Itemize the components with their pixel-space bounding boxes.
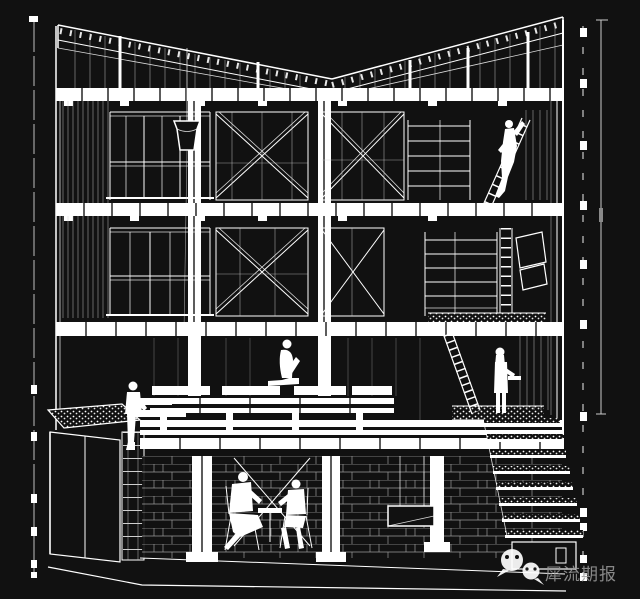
siding-left-2 [63, 216, 108, 318]
second-floor [63, 216, 547, 323]
ladder-ground [444, 332, 480, 414]
loft-shelves-2 [425, 228, 512, 318]
wall-edges [56, 20, 563, 430]
dimension-line [596, 20, 608, 414]
section-perspective-drawing: 犀流期报 [0, 0, 640, 599]
ground-base-line [48, 567, 566, 591]
ceiling-band [56, 88, 564, 106]
balcony-planting [428, 313, 546, 323]
hanging-panels [516, 232, 547, 290]
figure-climber [495, 120, 525, 198]
x-brace-3a [216, 112, 308, 200]
basement [140, 420, 565, 574]
x-brace-3b [322, 112, 404, 200]
siding-left-3 [63, 101, 108, 203]
x-brace-2b [322, 228, 384, 316]
section-drawing-canvas: 犀流期报 [0, 0, 640, 599]
figure-sitting-bench [268, 340, 300, 387]
clerestory-mullions-left [75, 30, 300, 88]
watermark-text: 犀流期报 [545, 565, 617, 585]
floor-band-2 [56, 203, 564, 221]
floor-band-1 [56, 322, 564, 336]
plank-wall-3-right [526, 110, 547, 200]
shelf-unit-3 [408, 120, 470, 200]
x-brace-2a [216, 228, 308, 316]
roof-structure [58, 17, 563, 97]
plank-wall-ground-right [520, 336, 548, 410]
figure-standing-terrace [494, 348, 521, 414]
